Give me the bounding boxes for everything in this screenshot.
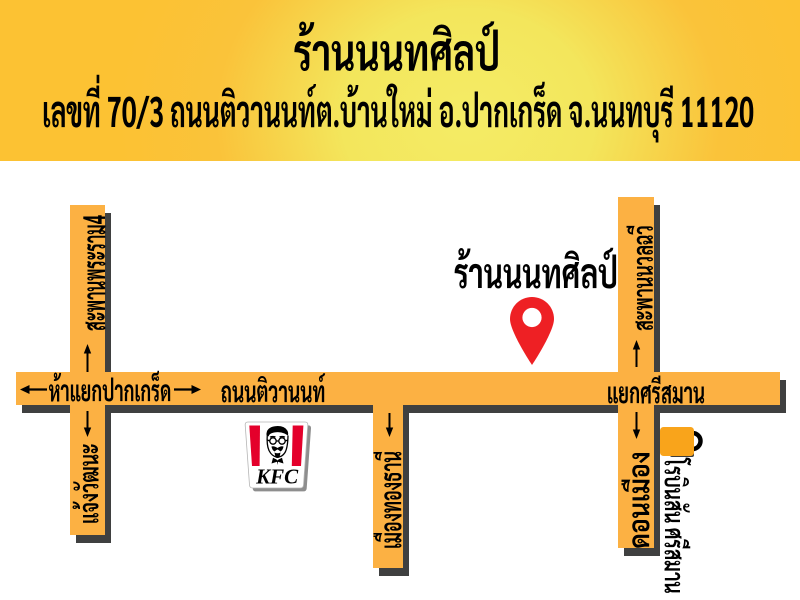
- svg-text:KFC: KFC: [255, 465, 299, 489]
